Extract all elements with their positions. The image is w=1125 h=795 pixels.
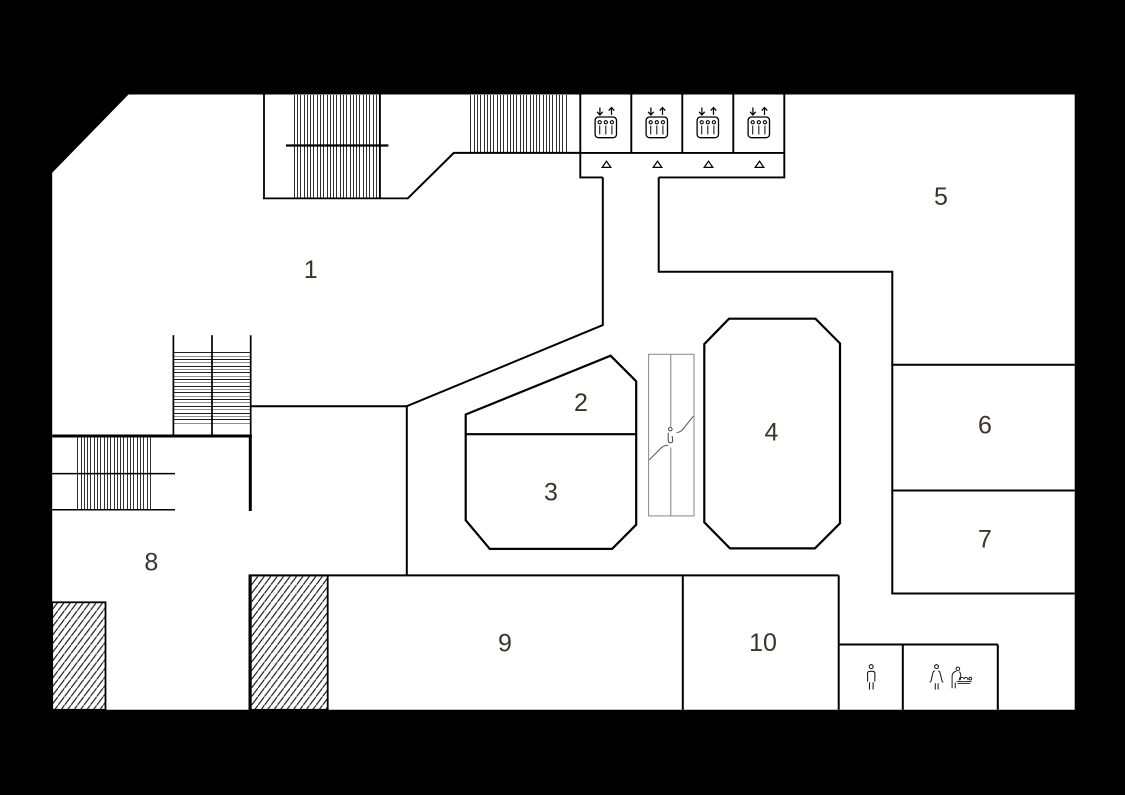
- svg-text:1: 1: [304, 256, 318, 284]
- svg-text:8: 8: [144, 549, 158, 577]
- svg-text:4: 4: [764, 419, 778, 447]
- svg-text:2: 2: [574, 389, 588, 417]
- svg-text:5: 5: [934, 183, 948, 211]
- svg-text:3: 3: [544, 479, 558, 507]
- svg-text:6: 6: [978, 412, 992, 440]
- svg-text:10: 10: [749, 629, 777, 657]
- svg-text:9: 9: [498, 630, 512, 658]
- svg-text:7: 7: [978, 526, 992, 554]
